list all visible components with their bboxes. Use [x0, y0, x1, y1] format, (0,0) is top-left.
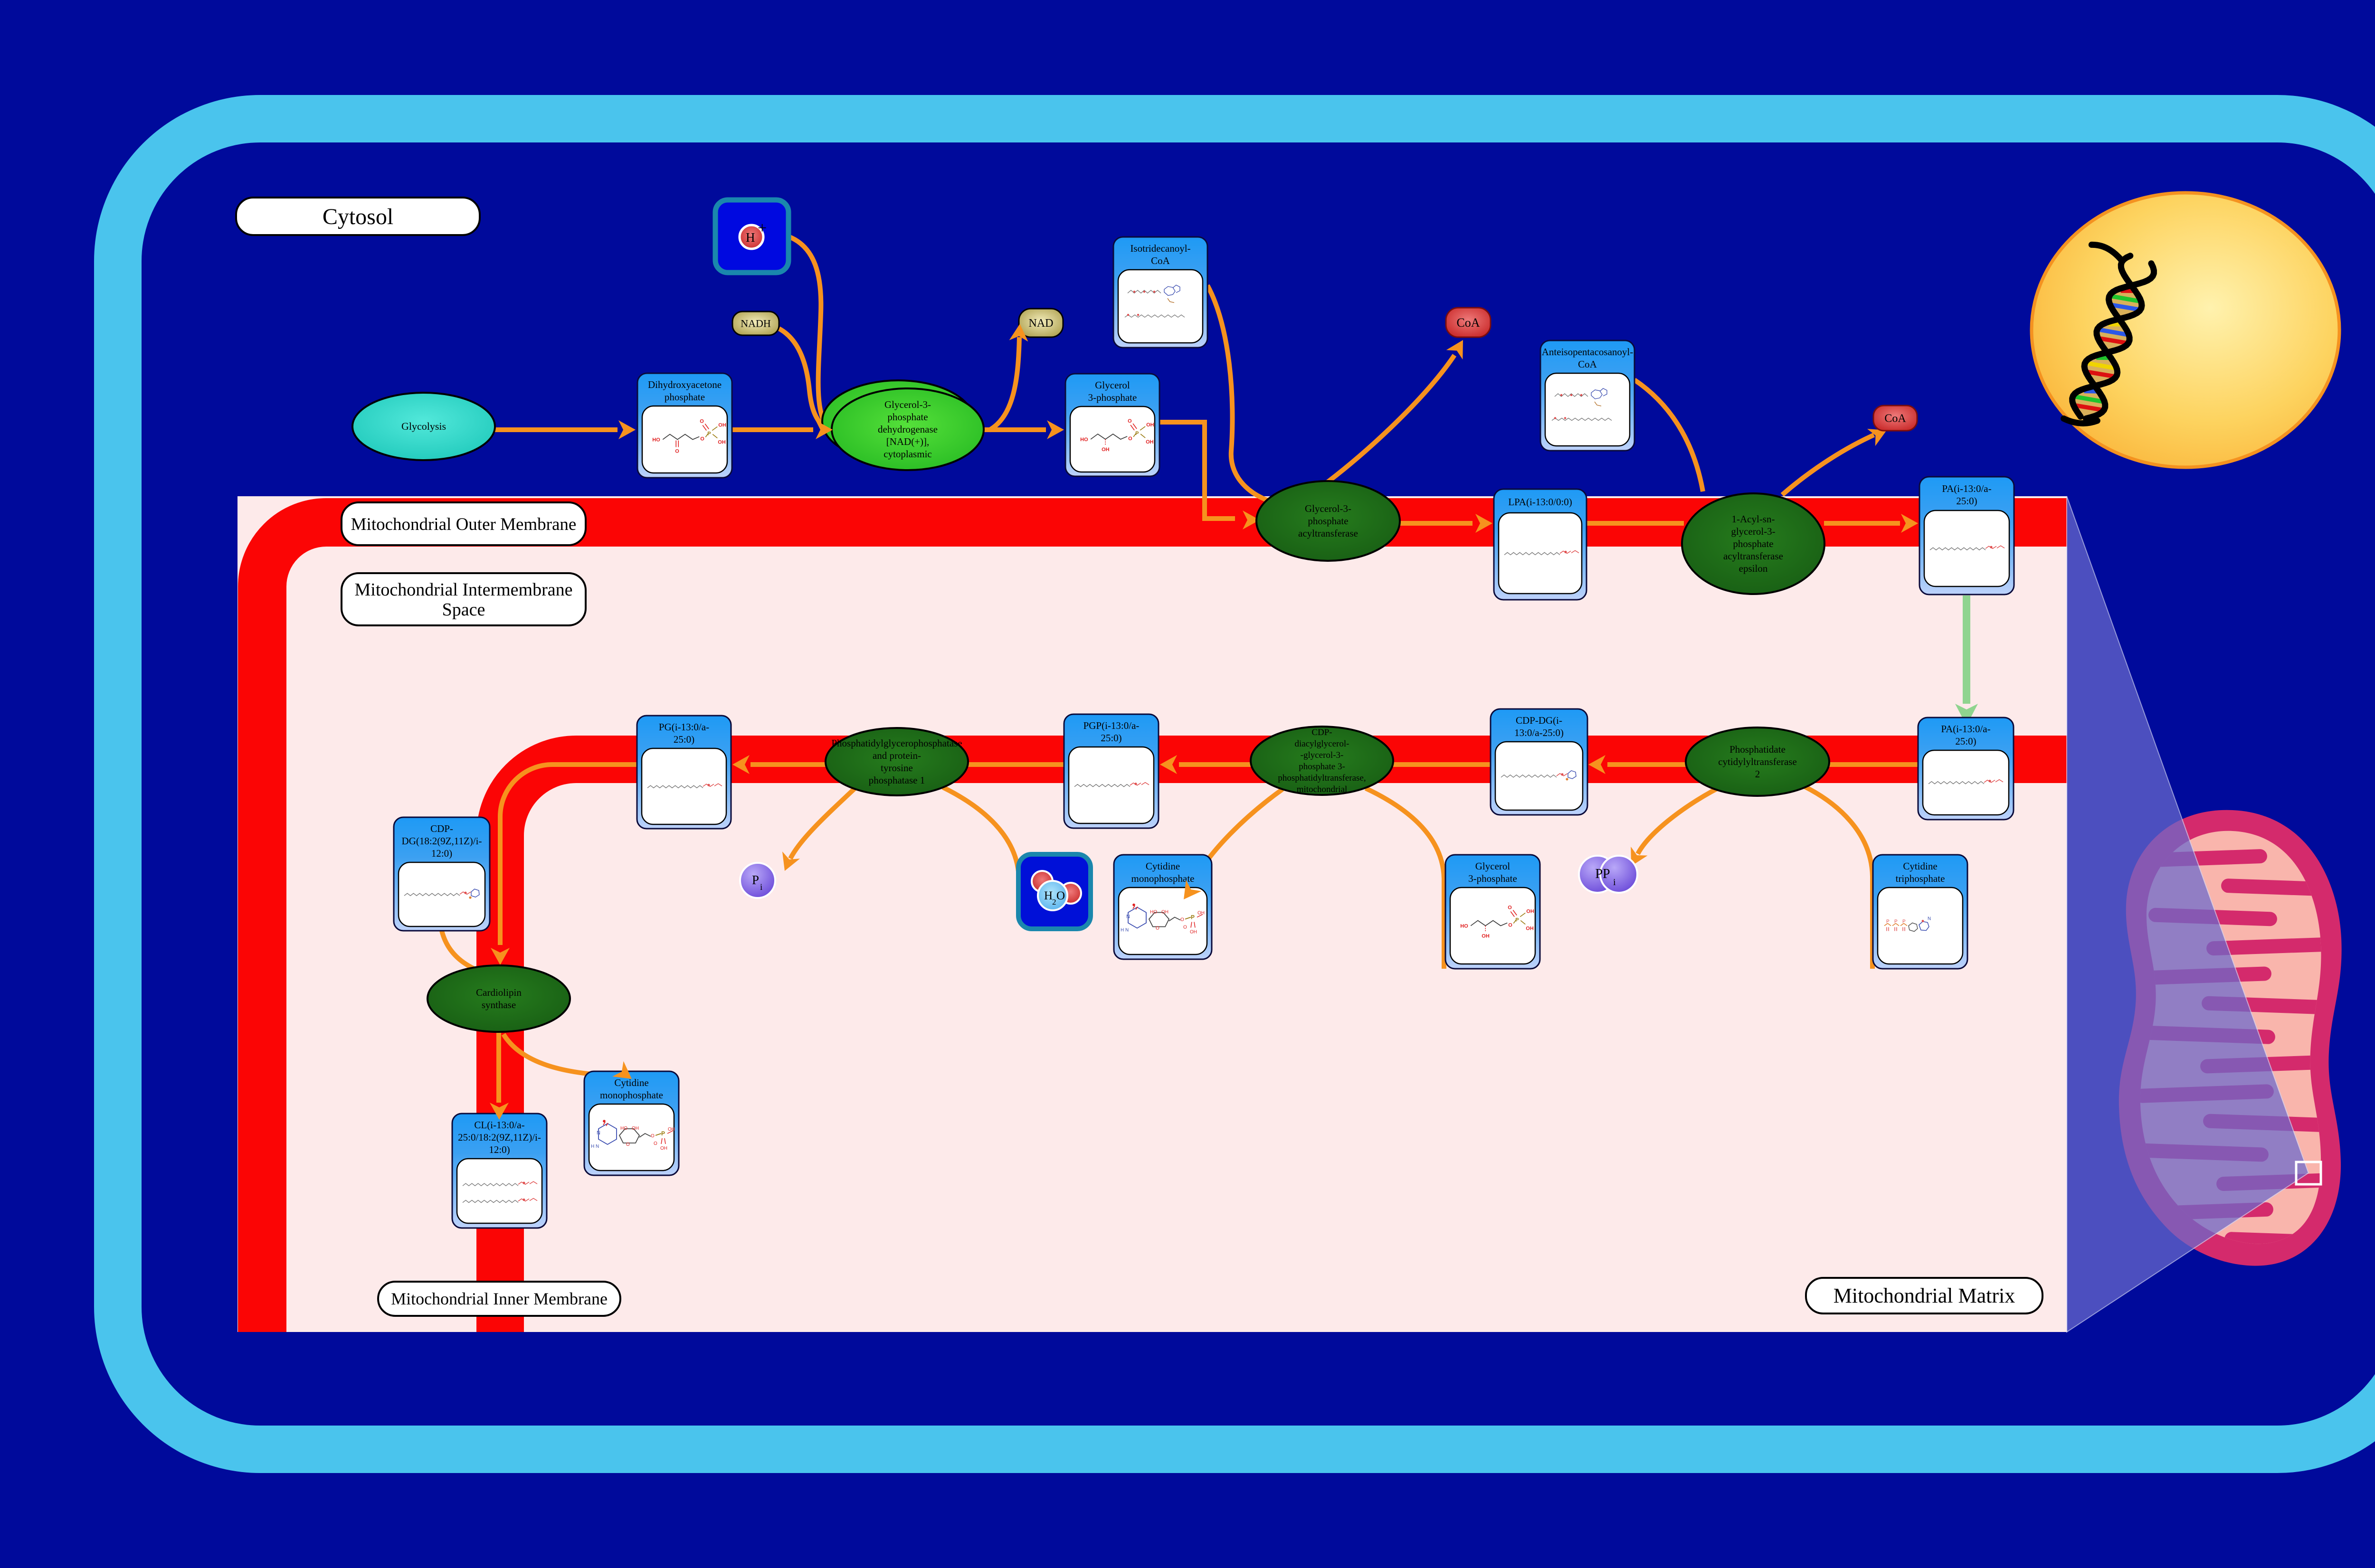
svg-text:P: P — [1191, 914, 1195, 921]
svg-text:OH: OH — [1161, 910, 1168, 915]
svg-text:+: + — [758, 219, 767, 237]
svg-text:phosphate: phosphate — [665, 391, 705, 403]
svg-text:OH: OH — [632, 1126, 639, 1131]
svg-text:O: O — [675, 449, 679, 454]
svg-text:PA(i-13:0/a-: PA(i-13:0/a- — [1941, 723, 1990, 735]
svg-text:PA(i-13:0/a-: PA(i-13:0/a- — [1942, 483, 1991, 494]
svg-text:O: O — [654, 1141, 657, 1146]
svg-text:dehydrogenase: dehydrogenase — [878, 424, 938, 435]
svg-text:Glycerol: Glycerol — [1475, 860, 1510, 872]
svg-text:acyltransferase: acyltransferase — [1298, 528, 1358, 539]
svg-text:P: P — [1135, 431, 1139, 436]
svg-text:25:0): 25:0) — [1101, 732, 1121, 744]
svg-text:H: H — [746, 230, 755, 245]
svg-text:mitochondrial: mitochondrial — [1297, 784, 1348, 794]
svg-text:P: P — [752, 873, 759, 887]
svg-text:P: P — [661, 1130, 665, 1137]
svg-text:OH: OH — [1197, 911, 1205, 916]
svg-text:Anteisopentacosanoyl-: Anteisopentacosanoyl- — [1542, 346, 1633, 358]
svg-text:HO: HO — [620, 1126, 627, 1131]
svg-text:-glycerol-3-: -glycerol-3- — [1301, 750, 1344, 760]
svg-text:Mitochondrial Inner Membrane: Mitochondrial Inner Membrane — [391, 1289, 608, 1308]
svg-text:2: 2 — [1755, 768, 1760, 780]
svg-text:Cardiolipin: Cardiolipin — [476, 987, 522, 998]
svg-text:O: O — [626, 1142, 630, 1147]
svg-text:25:0): 25:0) — [674, 734, 694, 745]
svg-text:i: i — [1613, 877, 1616, 888]
svg-text:diacylglycerol-: diacylglycerol- — [1294, 739, 1349, 749]
svg-text:PG(i-13:0/a-: PG(i-13:0/a- — [659, 721, 709, 733]
svg-text:1-Acyl-sn-: 1-Acyl-sn- — [1732, 513, 1775, 525]
svg-text:12:0): 12:0) — [489, 1144, 510, 1155]
svg-text:25:0): 25:0) — [1955, 736, 1976, 747]
svg-text:3-phosphate: 3-phosphate — [1468, 873, 1517, 884]
svg-text:OH: OH — [1146, 439, 1154, 445]
svg-text:monophosphate: monophosphate — [1131, 873, 1195, 884]
svg-text:PGP(i-13:0/a-: PGP(i-13:0/a- — [1083, 720, 1140, 731]
svg-text:O: O — [1508, 905, 1512, 911]
svg-text:monophosphate: monophosphate — [600, 1089, 663, 1101]
svg-text:and protein-: and protein- — [873, 750, 921, 761]
svg-text:CoA: CoA — [1884, 413, 1906, 425]
svg-text:P: P — [707, 431, 711, 437]
svg-text:phosphatidyltransferase,: phosphatidyltransferase, — [1278, 773, 1366, 783]
svg-text:3-phosphate: 3-phosphate — [1088, 392, 1137, 403]
svg-text:P: P — [1886, 919, 1890, 925]
svg-text:Mitochondrial Matrix: Mitochondrial Matrix — [1833, 1284, 2015, 1307]
svg-text:triphosphate: triphosphate — [1896, 873, 1945, 884]
svg-text:Mitochondrial Outer Membrane: Mitochondrial Outer Membrane — [351, 515, 577, 534]
svg-text:O: O — [700, 419, 704, 425]
svg-text:OH: OH — [1482, 934, 1490, 939]
svg-text:N: N — [1928, 916, 1931, 922]
svg-text:LPA(i-13:0/0:0): LPA(i-13:0/0:0) — [1508, 496, 1572, 508]
svg-text:synthase: synthase — [482, 999, 516, 1011]
svg-text:Glycolysis: Glycolysis — [401, 420, 446, 432]
svg-text:H: H — [1044, 889, 1053, 902]
svg-text:H N: H N — [1121, 928, 1129, 933]
svg-text:O: O — [1056, 889, 1065, 902]
svg-text:O: O — [1156, 926, 1159, 931]
svg-text:NAD: NAD — [1029, 317, 1054, 330]
svg-text:N: N — [1126, 914, 1130, 920]
svg-text:[NAD(+)],: [NAD(+)], — [886, 436, 930, 447]
svg-text:O: O — [700, 436, 704, 442]
svg-text:phosphatase 1: phosphatase 1 — [869, 775, 925, 786]
svg-text:cytidylyltransferase: cytidylyltransferase — [1718, 756, 1797, 767]
svg-text:O: O — [1128, 418, 1132, 424]
svg-text:P: P — [1894, 919, 1898, 925]
svg-text:HO: HO — [1460, 924, 1468, 929]
svg-text:CL(i-13:0/a-: CL(i-13:0/a- — [474, 1119, 524, 1131]
svg-text:O: O — [1183, 925, 1187, 930]
svg-text:HO: HO — [652, 437, 660, 443]
svg-text:Mitochondrial Intermembrane: Mitochondrial Intermembrane — [354, 580, 572, 600]
svg-text:O: O — [1128, 436, 1132, 442]
svg-text:Glycerol: Glycerol — [1095, 379, 1130, 391]
svg-text:Cytidine: Cytidine — [1903, 860, 1937, 872]
svg-text:OH: OH — [668, 1127, 675, 1132]
svg-text:CoA: CoA — [1151, 255, 1170, 266]
svg-text:12:0): 12:0) — [431, 848, 452, 859]
svg-text:OH: OH — [1146, 422, 1154, 428]
svg-text:Glycerol-3-: Glycerol-3- — [884, 399, 931, 410]
svg-text:CDP-: CDP- — [430, 823, 453, 834]
svg-text:acyltransferase: acyltransferase — [1723, 550, 1783, 562]
svg-text:NADH: NADH — [741, 317, 771, 329]
svg-text:phosphate 3-: phosphate 3- — [1299, 762, 1345, 772]
svg-text:CDP-DG(i-: CDP-DG(i- — [1516, 715, 1562, 726]
svg-text:Cytosol: Cytosol — [323, 204, 393, 229]
svg-text:i: i — [760, 882, 762, 892]
svg-text:Dihydroxyacetone: Dihydroxyacetone — [648, 379, 722, 390]
svg-text:HO: HO — [1150, 910, 1157, 915]
svg-text:phosphate: phosphate — [887, 411, 928, 423]
svg-text:glycerol-3-: glycerol-3- — [1731, 526, 1775, 537]
svg-text:CDP-: CDP- — [1311, 727, 1332, 737]
svg-text:Isotridecanoyl-: Isotridecanoyl- — [1130, 243, 1190, 254]
svg-text:Space: Space — [442, 600, 485, 620]
svg-text:25:0/18:2(9Z,11Z)/i-: 25:0/18:2(9Z,11Z)/i- — [458, 1132, 541, 1143]
svg-text:O: O — [1180, 917, 1184, 923]
svg-text:CoA: CoA — [1578, 359, 1597, 370]
svg-text:OH: OH — [1102, 447, 1110, 453]
svg-text:OH: OH — [718, 423, 726, 428]
svg-text:CoA: CoA — [1456, 316, 1480, 330]
svg-text:cytoplasmic: cytoplasmic — [883, 448, 931, 460]
svg-text:DG(18:2(9Z,11Z)/i-: DG(18:2(9Z,11Z)/i- — [402, 835, 482, 847]
svg-text:2: 2 — [1052, 897, 1056, 907]
svg-text:phosphate: phosphate — [1308, 515, 1348, 527]
svg-text:H N: H N — [591, 1144, 599, 1149]
svg-text:HO: HO — [1080, 437, 1088, 443]
svg-text:Cytidine: Cytidine — [1146, 860, 1180, 872]
svg-text:O: O — [651, 1133, 655, 1139]
svg-text:phosphate: phosphate — [1733, 538, 1773, 549]
svg-text:P: P — [1515, 917, 1519, 923]
svg-text:13:0/a-25:0): 13:0/a-25:0) — [1514, 727, 1564, 738]
svg-text:PP: PP — [1595, 867, 1610, 881]
svg-text:tyrosine: tyrosine — [881, 762, 913, 774]
svg-text:OH: OH — [660, 1146, 667, 1151]
svg-text:OH: OH — [1190, 930, 1197, 935]
svg-text:Phosphatidate: Phosphatidate — [1729, 744, 1786, 755]
svg-text:OH: OH — [718, 440, 726, 445]
svg-text:O: O — [1508, 923, 1512, 928]
svg-text:OH: OH — [1526, 926, 1534, 932]
svg-text:Glycerol-3-: Glycerol-3- — [1305, 503, 1351, 514]
svg-text:OH: OH — [1526, 909, 1534, 915]
svg-text:P: P — [1902, 919, 1906, 925]
svg-text:25:0): 25:0) — [1956, 495, 1977, 507]
svg-text:epsilon: epsilon — [1739, 563, 1768, 574]
svg-text:Phosphatidylglycerophosphatase: Phosphatidylglycerophosphatase — [831, 737, 962, 749]
svg-text:N: N — [597, 1130, 600, 1136]
